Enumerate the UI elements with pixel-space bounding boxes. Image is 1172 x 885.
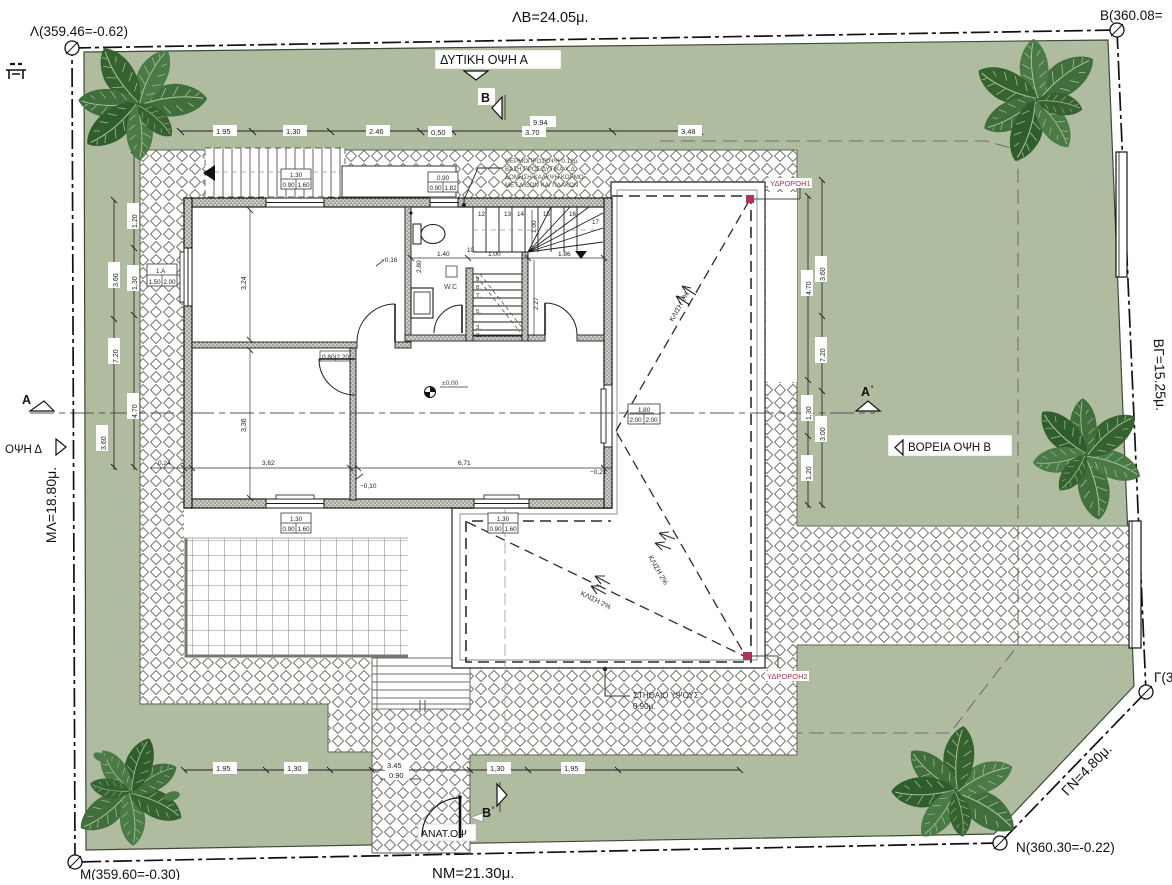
svg-text:7,20: 7,20 xyxy=(820,348,827,362)
svg-text:ΛΒ=24.05μ.: ΛΒ=24.05μ. xyxy=(512,10,589,26)
svg-text:3,62: 3,62 xyxy=(262,460,275,467)
svg-text:1,95: 1,95 xyxy=(564,764,579,773)
svg-text:2.00: 2.00 xyxy=(164,279,177,286)
svg-text:2.46: 2.46 xyxy=(369,127,384,136)
svg-text:0.80|2.20: 0.80|2.20 xyxy=(322,354,349,361)
svg-text:Ν(360.30=-0.22): Ν(360.30=-0.22) xyxy=(1016,840,1115,855)
svg-text:Α: Α xyxy=(22,393,31,407)
svg-text:1,20: 1,20 xyxy=(806,466,813,480)
svg-text:ΣΤΗΘΑΙΟ ΥΨΟΥΣ: ΣΤΗΘΑΙΟ ΥΨΟΥΣ xyxy=(633,691,699,700)
svg-text:0.90: 0.90 xyxy=(430,185,443,192)
svg-text:1.Α: 1.Α xyxy=(156,268,166,275)
svg-text:−0,21: −0,21 xyxy=(590,469,607,476)
svg-text:3.70: 3.70 xyxy=(525,128,540,137)
svg-text:−0,10: −0,10 xyxy=(360,483,377,490)
svg-text:4.70: 4.70 xyxy=(132,404,139,418)
svg-text:17: 17 xyxy=(592,219,600,226)
svg-text:0.90: 0.90 xyxy=(437,175,450,182)
svg-text:2.80: 2.80 xyxy=(416,260,423,273)
svg-text:14: 14 xyxy=(517,211,525,218)
svg-text:10.: 10. xyxy=(467,247,476,254)
svg-text:1.60: 1.60 xyxy=(298,526,311,533)
svg-text:4.70: 4.70 xyxy=(806,281,813,295)
svg-text:1.86: 1.86 xyxy=(558,251,571,258)
svg-text:0.90μ.: 0.90μ. xyxy=(633,702,655,711)
svg-text:1,30: 1,30 xyxy=(490,764,505,773)
svg-text:ΔΥΤΙΚΗ ΟΨΗ Α: ΔΥΤΙΚΗ ΟΨΗ Α xyxy=(440,53,529,67)
svg-text:12: 12 xyxy=(478,211,486,218)
svg-text:': ' xyxy=(871,384,873,394)
svg-text:ΥΔΡΟΡΟΗ2: ΥΔΡΟΡΟΗ2 xyxy=(767,672,808,681)
svg-text:0.90: 0.90 xyxy=(389,771,404,780)
svg-text:3.: 3. xyxy=(476,325,481,331)
svg-text:1,30: 1,30 xyxy=(806,406,813,420)
svg-text:3,48: 3,48 xyxy=(681,127,696,136)
svg-text:1.00: 1.00 xyxy=(488,251,501,258)
svg-text:3,36: 3,36 xyxy=(241,418,248,432)
svg-text:3.00: 3.00 xyxy=(820,427,827,441)
svg-text:Α: Α xyxy=(861,385,870,399)
svg-text:ΟΨΗ Δ: ΟΨΗ Δ xyxy=(5,444,42,456)
svg-text:1.30: 1.30 xyxy=(290,172,303,179)
svg-text:15: 15 xyxy=(543,211,551,218)
svg-text:ΔΟΜΗΣΗ ΚΑΛΥΨΗ ΚΟΡΜΟ-: ΔΟΜΗΣΗ ΚΑΛΥΨΗ ΚΟΡΜΟ- xyxy=(505,174,586,181)
svg-text:2.27: 2.27 xyxy=(533,297,540,310)
svg-text:1.95: 1.95 xyxy=(216,127,231,136)
svg-text:0.90: 0.90 xyxy=(490,526,503,533)
svg-text:Λ(359.46=-0.62): Λ(359.46=-0.62) xyxy=(30,24,128,39)
svg-text:ΜΕΤ.ΛΙΘΩΝ ΚΑΙ ΠΛΑΚΩΝ: ΜΕΤ.ΛΙΘΩΝ ΚΑΙ ΠΛΑΚΩΝ xyxy=(505,182,578,189)
svg-text:13: 13 xyxy=(504,211,512,218)
svg-text:3.60: 3.60 xyxy=(820,267,827,281)
svg-text:1.82: 1.82 xyxy=(445,185,458,192)
svg-text:1.60: 1.60 xyxy=(505,526,518,533)
svg-text:3.60: 3.60 xyxy=(101,436,108,450)
svg-text:±0,00: ±0,00 xyxy=(442,380,459,387)
svg-text:1,20: 1,20 xyxy=(132,214,139,228)
svg-text:1,30: 1,30 xyxy=(132,276,139,290)
svg-text:1.50: 1.50 xyxy=(149,279,162,286)
svg-text:3.45: 3.45 xyxy=(387,761,402,770)
svg-text:7.20: 7.20 xyxy=(113,349,120,363)
svg-text:2.00: 2.00 xyxy=(646,417,659,424)
svg-text:0.90: 0.90 xyxy=(283,182,296,189)
svg-text:1.95: 1.95 xyxy=(216,764,231,773)
svg-text:ΒΟΡΕΙΑ ΟΨΗ Β: ΒΟΡΕΙΑ ΟΨΗ Β xyxy=(908,442,991,454)
svg-text:1.30: 1.30 xyxy=(290,516,303,523)
svg-text:ΝΜ=21.30μ.: ΝΜ=21.30μ. xyxy=(432,865,514,880)
svg-text:Β(360.08=: Β(360.08= xyxy=(1100,8,1163,23)
svg-text:Μ(359.60=-0.30): Μ(359.60=-0.30) xyxy=(80,867,180,880)
svg-text:': ' xyxy=(492,805,494,815)
svg-text:5.: 5. xyxy=(476,309,481,315)
svg-text:Γ(3: Γ(3 xyxy=(1154,670,1172,685)
svg-text:ΒΓ=15.25μ.: ΒΓ=15.25μ. xyxy=(1151,338,1170,411)
svg-text:ΘΕΡΜΟΠΡΟΣΟΨΗ 0.12μ.: ΘΕΡΜΟΠΡΟΣΟΨΗ 0.12μ. xyxy=(505,158,579,165)
svg-text:8.: 8. xyxy=(476,285,481,291)
svg-text:1,30: 1,30 xyxy=(287,764,302,773)
svg-text:ΜΛ=18.80μ.: ΜΛ=18.80μ. xyxy=(43,467,59,543)
svg-text:3,24: 3,24 xyxy=(241,276,248,290)
svg-text:6,71: 6,71 xyxy=(458,460,471,467)
svg-text:1.00: 1.00 xyxy=(531,220,538,233)
svg-text:0.90: 0.90 xyxy=(283,526,296,533)
svg-text:16: 16 xyxy=(569,211,577,218)
svg-text:ΥΔΡΟΡΟΗ1: ΥΔΡΟΡΟΗ1 xyxy=(770,179,811,188)
svg-text:1.60: 1.60 xyxy=(298,182,311,189)
svg-text:1.40: 1.40 xyxy=(437,251,450,258)
svg-text:2.00: 2.00 xyxy=(630,417,643,424)
svg-text:1.30: 1.30 xyxy=(497,516,510,523)
svg-text:3.60: 3.60 xyxy=(113,273,120,287)
svg-text:0,50: 0,50 xyxy=(431,128,446,137)
svg-text:1,30: 1,30 xyxy=(286,127,301,136)
svg-text:2.: 2. xyxy=(476,333,481,339)
svg-text:W.C: W.C xyxy=(444,284,457,291)
svg-text:B: B xyxy=(481,91,490,105)
svg-text:ΒΑΣΗ ΠΡΟΣ ΔΥΤΙΚΑ Χ.Δ.: ΒΑΣΗ ΠΡΟΣ ΔΥΤΙΚΑ Χ.Δ. xyxy=(505,166,577,173)
svg-text:9.94: 9.94 xyxy=(533,118,548,127)
svg-text:0,24: 0,24 xyxy=(158,460,171,467)
svg-text:7.: 7. xyxy=(476,293,481,299)
